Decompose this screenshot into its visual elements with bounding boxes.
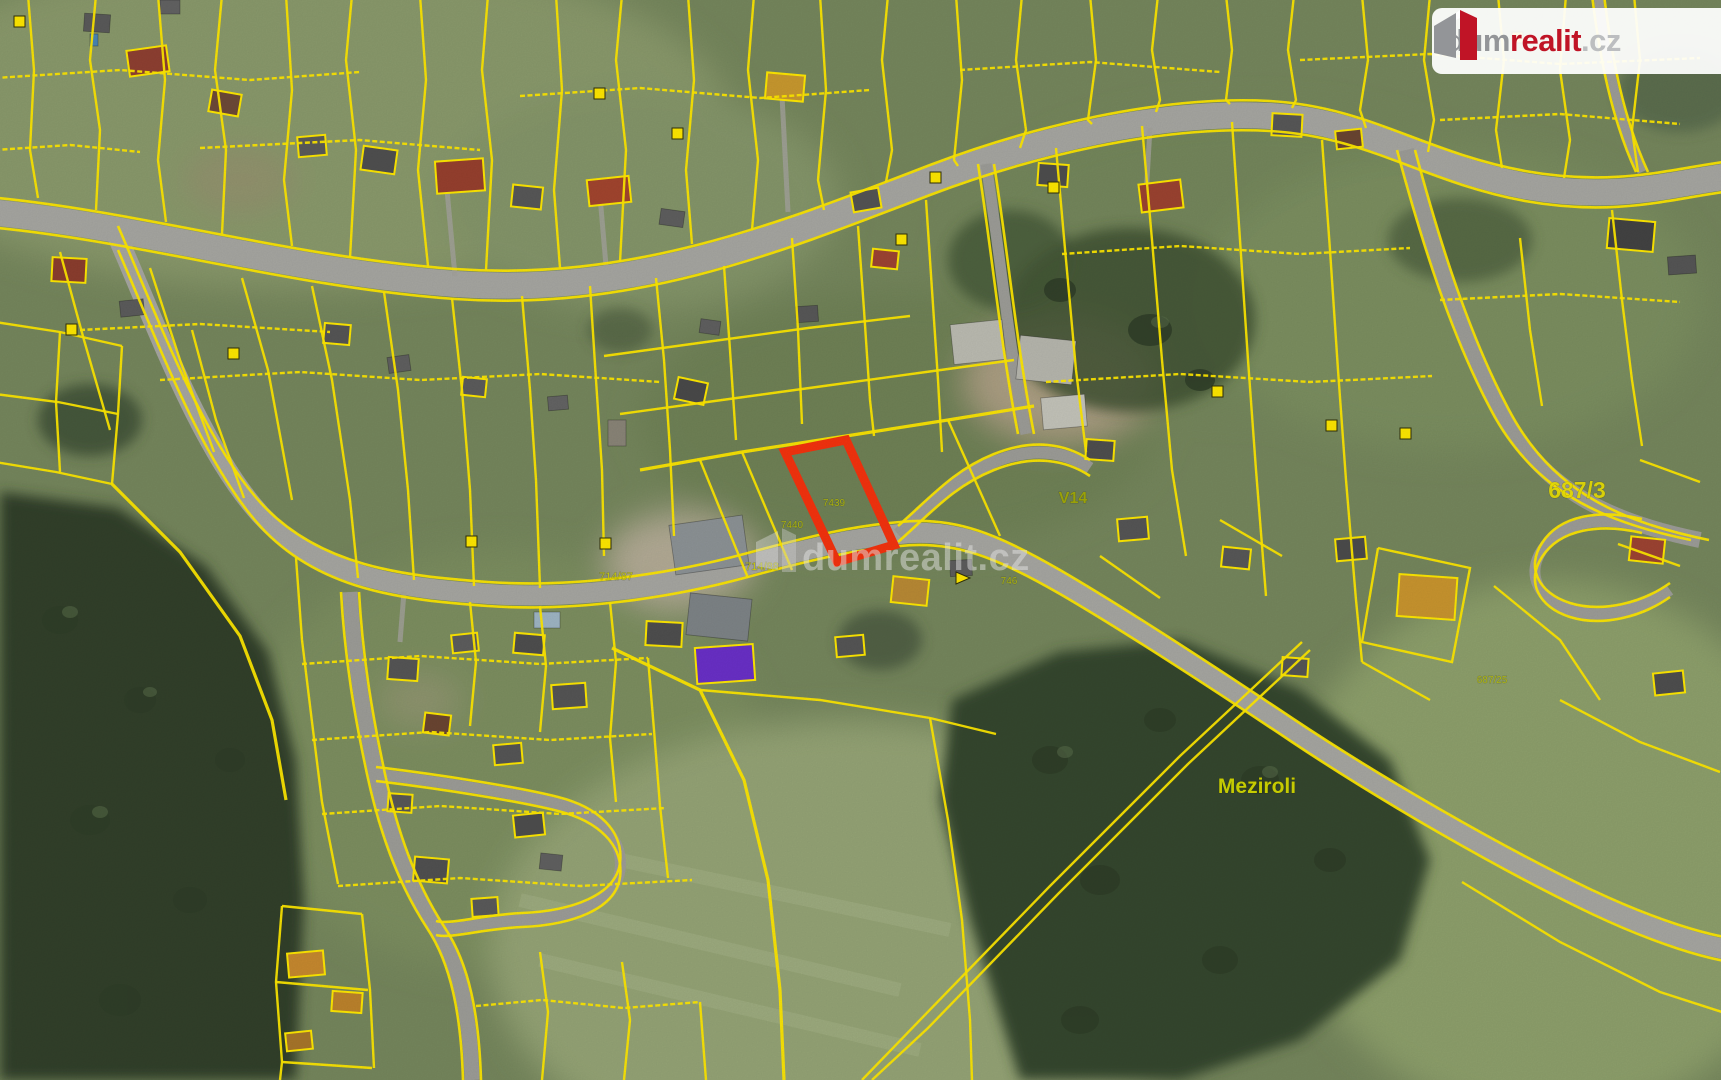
photo-grain-overlay <box>0 0 1721 1080</box>
logo-text-realit: realit <box>1510 23 1581 58</box>
logo-text-cz: .cz <box>1581 23 1621 58</box>
dumrealit-logo[interactable]: dumrealit.cz <box>1432 8 1721 74</box>
map-viewport[interactable]: Meziroli687/3V14714/87714/88743974407466… <box>0 0 1721 1080</box>
cadastral-map: Meziroli687/3V14714/87714/88743974407466… <box>0 0 1721 1080</box>
dumrealit-house-icon <box>1432 8 1478 60</box>
